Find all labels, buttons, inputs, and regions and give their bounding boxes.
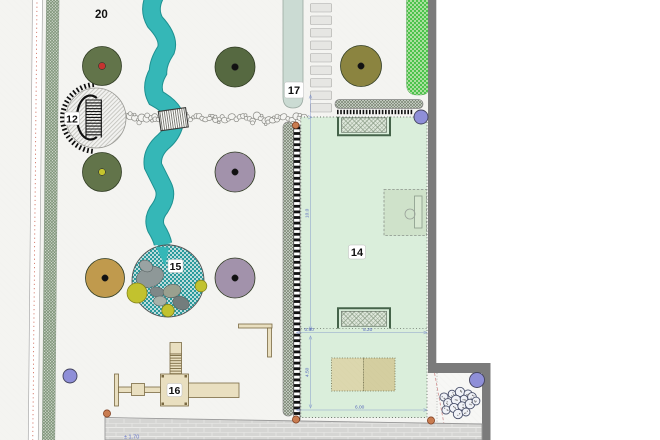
svg-text:17: 17 bbox=[288, 85, 300, 97]
svg-text:14: 14 bbox=[351, 247, 364, 259]
svg-text:0.80: 0.80 bbox=[305, 327, 315, 333]
svg-text:4.50: 4.50 bbox=[304, 367, 310, 377]
svg-text:12: 12 bbox=[66, 113, 78, 125]
svg-text:15: 15 bbox=[170, 261, 182, 273]
svg-text:20: 20 bbox=[95, 9, 108, 21]
svg-text:10.0: 10.0 bbox=[304, 208, 310, 218]
svg-text:± 1.70: ± 1.70 bbox=[124, 435, 139, 440]
svg-text:5.20: 5.20 bbox=[363, 327, 373, 333]
svg-text:16: 16 bbox=[169, 385, 181, 397]
svg-text:6.00: 6.00 bbox=[355, 405, 365, 411]
